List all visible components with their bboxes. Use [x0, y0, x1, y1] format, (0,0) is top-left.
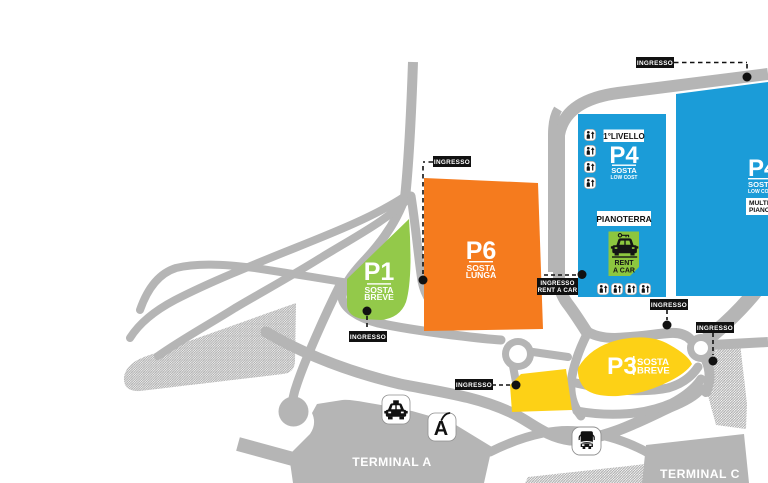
svg-text:TERMINAL A: TERMINAL A	[352, 455, 431, 469]
svg-text:P1: P1	[364, 258, 395, 286]
svg-text:BREVE: BREVE	[637, 366, 670, 377]
svg-text:INGRESSO: INGRESSO	[697, 325, 733, 332]
svg-text:MULTI: MULTI	[749, 200, 768, 207]
svg-text:A: A	[434, 418, 448, 440]
svg-text:P6: P6	[466, 237, 497, 265]
svg-text:1°LIVELLO: 1°LIVELLO	[603, 132, 644, 141]
svg-text:PIANOTERRA: PIANOTERRA	[596, 214, 651, 224]
svg-text:INGRESSO: INGRESSO	[350, 334, 386, 341]
svg-text:SOSTA: SOSTA	[748, 180, 768, 189]
svg-text:P3: P3	[607, 353, 637, 380]
svg-text:RENT A CAR: RENT A CAR	[538, 287, 578, 294]
svg-text:TERMINAL C: TERMINAL C	[660, 467, 740, 481]
svg-text:INGRESSO: INGRESSO	[637, 60, 673, 67]
svg-text:INGRESSO: INGRESSO	[434, 159, 470, 166]
svg-text:A CAR: A CAR	[613, 268, 635, 275]
svg-text:INGRESSO: INGRESSO	[540, 280, 574, 287]
svg-text:LOW COST: LOW COST	[748, 189, 768, 195]
svg-text:BREVE: BREVE	[364, 292, 394, 302]
svg-text:P4: P4	[748, 155, 768, 182]
svg-text:INGRESSO: INGRESSO	[456, 382, 492, 389]
svg-text:LOW COST: LOW COST	[611, 175, 638, 181]
svg-text:SOSTA: SOSTA	[611, 166, 637, 175]
svg-text:LUNGA: LUNGA	[466, 270, 497, 280]
svg-text:INGRESSO: INGRESSO	[651, 302, 687, 309]
svg-text:PIANO: PIANO	[749, 207, 768, 214]
svg-text:RENT: RENT	[614, 260, 634, 267]
